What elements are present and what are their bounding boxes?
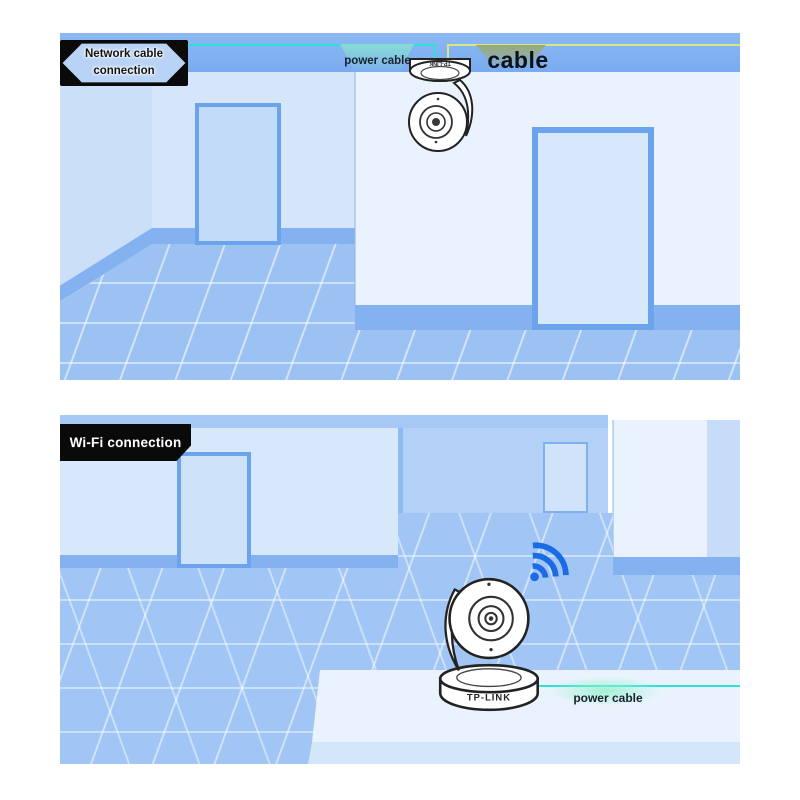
right-wall (613, 420, 707, 557)
right-side-wall (707, 420, 740, 575)
wifi-connection-tag: Wi-Fi connection (60, 424, 191, 461)
tag-label: Network cable connection (60, 40, 188, 86)
network-connection-tag: Network cable connection (60, 40, 188, 86)
alcove-door (543, 442, 588, 513)
near-door (532, 127, 654, 330)
wall-corner-edge (354, 72, 356, 305)
network-cable-label: cable (478, 47, 558, 74)
platform-front (300, 742, 740, 764)
brand-text: TP-LINK (467, 692, 511, 702)
right-wall-baseboard (613, 557, 740, 575)
left-door (177, 452, 251, 568)
alcove-edge (398, 428, 403, 513)
power-cable-label: power cable (548, 691, 668, 705)
ip-camera-desk: TP-LINK (438, 575, 542, 715)
far-door (195, 103, 281, 245)
network-connection-scene: power cable cable TP-LINK Network cable … (60, 33, 740, 380)
tag-label: Wi-Fi connection (70, 435, 182, 450)
wifi-connection-scene: power cable TP-LINK Wi-Fi connection (60, 415, 740, 764)
ip-camera-ceiling: TP-LINK (402, 56, 478, 174)
brand-text: TP-LINK (429, 60, 451, 66)
